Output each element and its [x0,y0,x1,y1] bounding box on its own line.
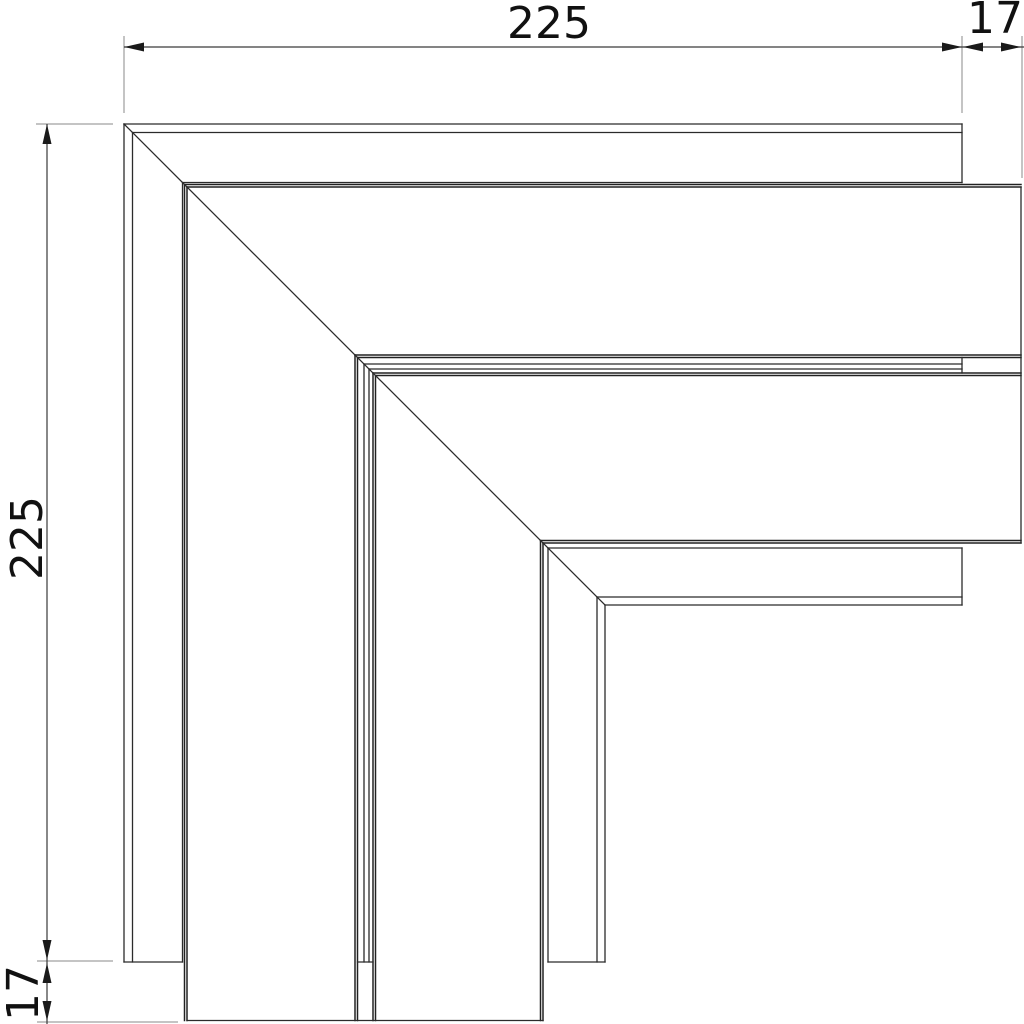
dim-label-bottom-left-17: 17 [0,965,49,1021]
dim-label-top-right-17: 17 [967,0,1023,44]
arrowhead-top [43,124,52,144]
drawing-canvas: 225 17 225 17 [0,0,1024,1024]
dim-label-left-225: 225 [2,496,53,580]
arrowhead-bottom-225 [43,940,52,960]
flat-angle-technical-drawing: 225 17 225 17 [0,0,1024,1024]
arrowhead-right-225 [942,43,962,52]
arrowhead-left [124,43,144,52]
dim-label-top-225: 225 [507,0,591,49]
